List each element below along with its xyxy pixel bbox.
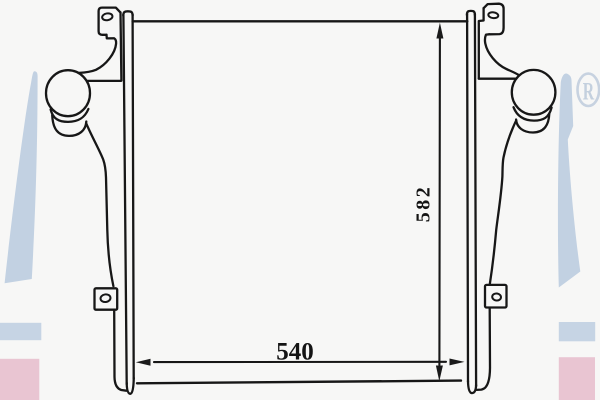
svg-text:540: 540 (276, 339, 314, 366)
svg-text:R: R (583, 76, 595, 105)
svg-text:582: 582 (413, 185, 435, 223)
